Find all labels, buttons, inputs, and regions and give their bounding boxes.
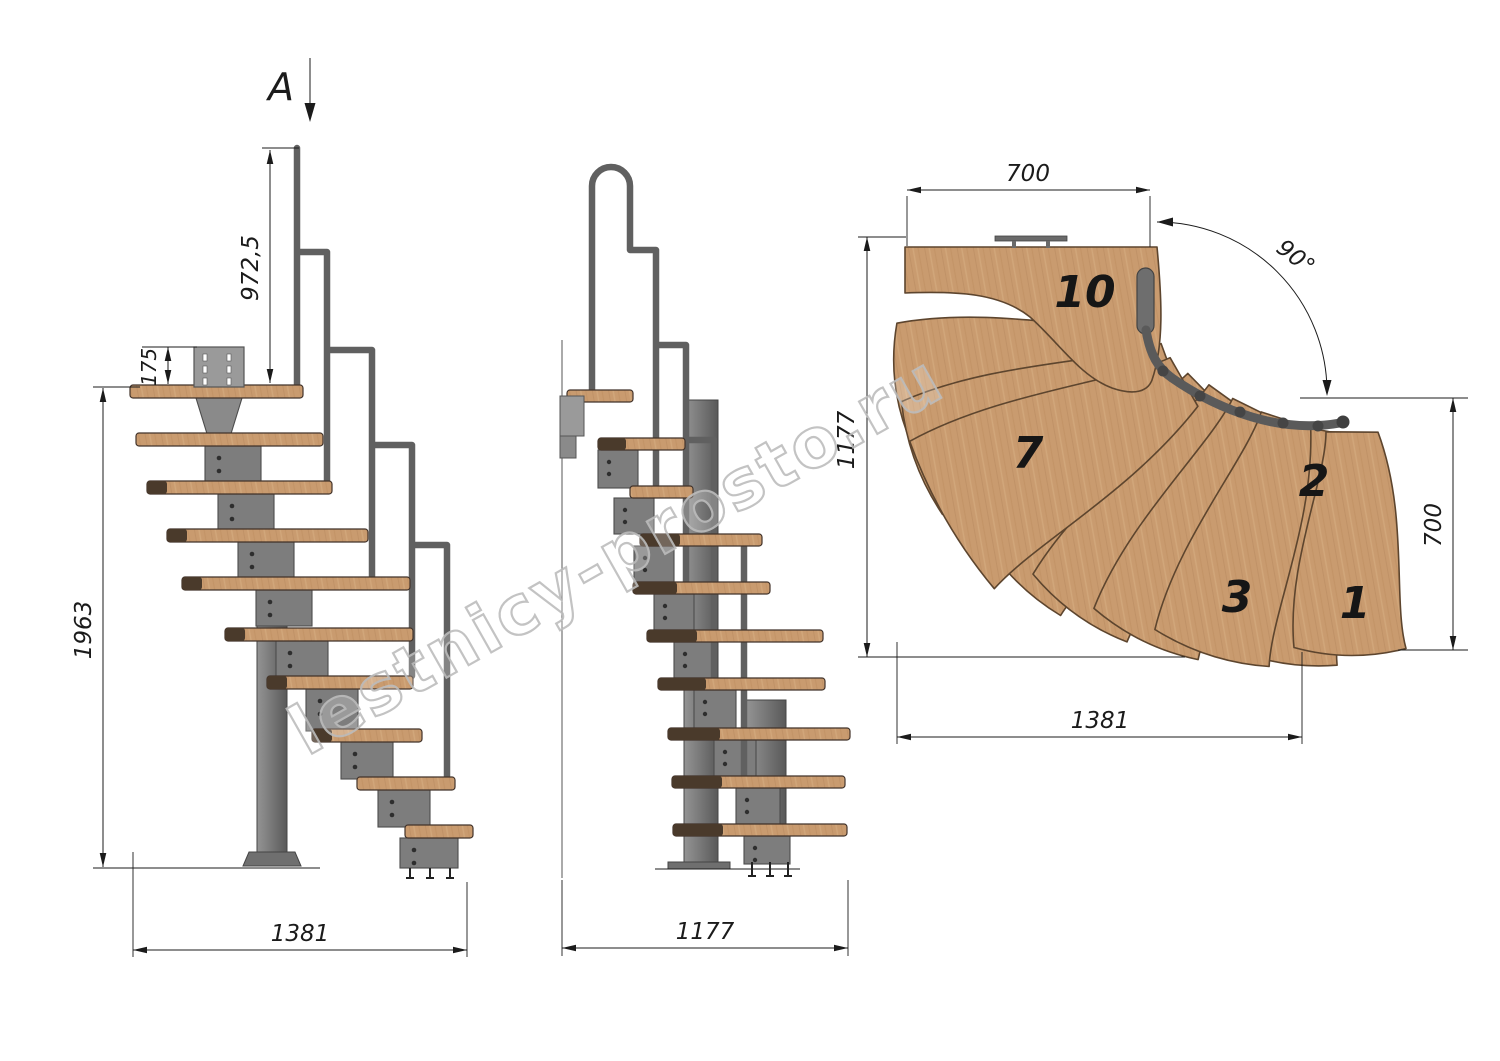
bolt xyxy=(745,810,749,814)
tread-end-cap xyxy=(182,577,202,590)
plate-hole xyxy=(227,354,231,361)
bolt xyxy=(268,613,273,618)
dim-total-length-plan: 1381 xyxy=(1071,708,1130,734)
bolt xyxy=(353,752,358,757)
plate-hole xyxy=(227,378,231,385)
stringer-module xyxy=(276,641,328,678)
dim-mount-plate: 175 xyxy=(137,348,161,386)
wall-mount-plate xyxy=(194,347,244,387)
plate-hole xyxy=(227,366,231,373)
bolt xyxy=(753,858,757,862)
plate-hole xyxy=(203,366,207,373)
bolt xyxy=(753,846,757,850)
step-label-2: 2 xyxy=(1299,456,1330,507)
column-base xyxy=(668,862,730,869)
bolt xyxy=(703,700,707,704)
wall-mount-plate xyxy=(560,436,576,458)
bolt xyxy=(607,460,611,464)
bolt xyxy=(703,712,707,716)
tread xyxy=(405,825,473,838)
arc-arrow xyxy=(1157,218,1173,227)
dim-total-width-b: 1177 xyxy=(676,919,735,945)
tread-end-cap xyxy=(598,438,626,450)
stringer-module xyxy=(714,740,756,776)
tread xyxy=(182,577,410,590)
stringer-module xyxy=(205,446,261,484)
tread xyxy=(225,628,413,641)
bolt xyxy=(250,552,255,557)
bolt xyxy=(390,800,395,805)
bolt xyxy=(288,664,293,669)
bolt xyxy=(217,456,222,461)
dim-handrail-height: 972,5 xyxy=(238,235,264,301)
bolt xyxy=(683,664,687,668)
step-label-3: 3 xyxy=(1222,572,1253,623)
stringer-module xyxy=(694,690,736,730)
tread xyxy=(167,529,368,542)
tread-end-cap xyxy=(668,728,720,740)
technical-drawing-staircase: A 972,5 175 1963 1381 1177 xyxy=(0,0,1500,1061)
step-label-7: 7 xyxy=(1013,428,1044,479)
bolt xyxy=(412,861,417,866)
tread-end-cap xyxy=(167,529,187,542)
bolt xyxy=(268,600,273,605)
bolt xyxy=(607,472,611,476)
dim-total-height: 1963 xyxy=(71,601,97,660)
stringer-module xyxy=(744,836,790,864)
bolt xyxy=(288,651,293,656)
column-base xyxy=(243,852,301,866)
stringer-module xyxy=(218,494,274,532)
bolt xyxy=(663,616,667,620)
dim-exit-depth: 700 xyxy=(1421,503,1447,547)
tread-end-cap xyxy=(147,481,167,494)
arc-arrow xyxy=(1323,380,1332,396)
watermark: lestnicy-prosto.ru xyxy=(277,339,958,771)
side-view-a-geometry xyxy=(130,148,473,878)
tread-end-cap xyxy=(647,630,697,642)
stringer-module xyxy=(654,594,694,630)
stringer-module xyxy=(400,838,458,868)
side-view-a: A 972,5 175 1963 1381 xyxy=(71,58,473,957)
dim-landing-width: 700 xyxy=(1006,161,1050,187)
plate-hole xyxy=(203,378,207,385)
bolt xyxy=(745,798,749,802)
bolt xyxy=(250,565,255,570)
drawing-svg: A 972,5 175 1963 1381 1177 xyxy=(0,0,1500,1061)
step-label-10: 10 xyxy=(1054,267,1115,318)
bolt xyxy=(723,762,727,766)
section-label: A xyxy=(265,65,294,109)
tread-end-cap xyxy=(672,776,722,788)
plate-hole xyxy=(203,354,207,361)
tread-end-cap xyxy=(658,678,706,690)
step-label-1: 1 xyxy=(1340,578,1371,629)
bolt xyxy=(217,469,222,474)
tread-end-cap xyxy=(267,676,287,689)
bolt xyxy=(412,848,417,853)
dim-total-length-a: 1381 xyxy=(271,921,330,947)
bolt xyxy=(683,652,687,656)
tread-end-cap xyxy=(673,824,723,836)
stringer-module xyxy=(378,790,430,827)
bolt xyxy=(230,517,235,522)
bolt xyxy=(230,504,235,509)
bolt xyxy=(723,750,727,754)
stringer-module xyxy=(736,788,780,824)
stringer-module xyxy=(674,642,714,678)
stringer-module xyxy=(598,450,638,488)
bolt xyxy=(663,604,667,608)
plan-view: 10 7 3 2 1 700 1177 90° 700 1381 xyxy=(834,161,1468,744)
tread-end-cap xyxy=(225,628,245,641)
tread xyxy=(136,433,323,446)
wall-mount-plate xyxy=(560,396,584,436)
section-arrow-head xyxy=(305,103,316,122)
stringer-module xyxy=(238,542,294,580)
stringer-module xyxy=(256,590,312,626)
tread xyxy=(147,481,332,494)
tread xyxy=(357,777,455,790)
top-module-funnel xyxy=(196,398,242,437)
bolt xyxy=(353,765,358,770)
bolt xyxy=(390,813,395,818)
